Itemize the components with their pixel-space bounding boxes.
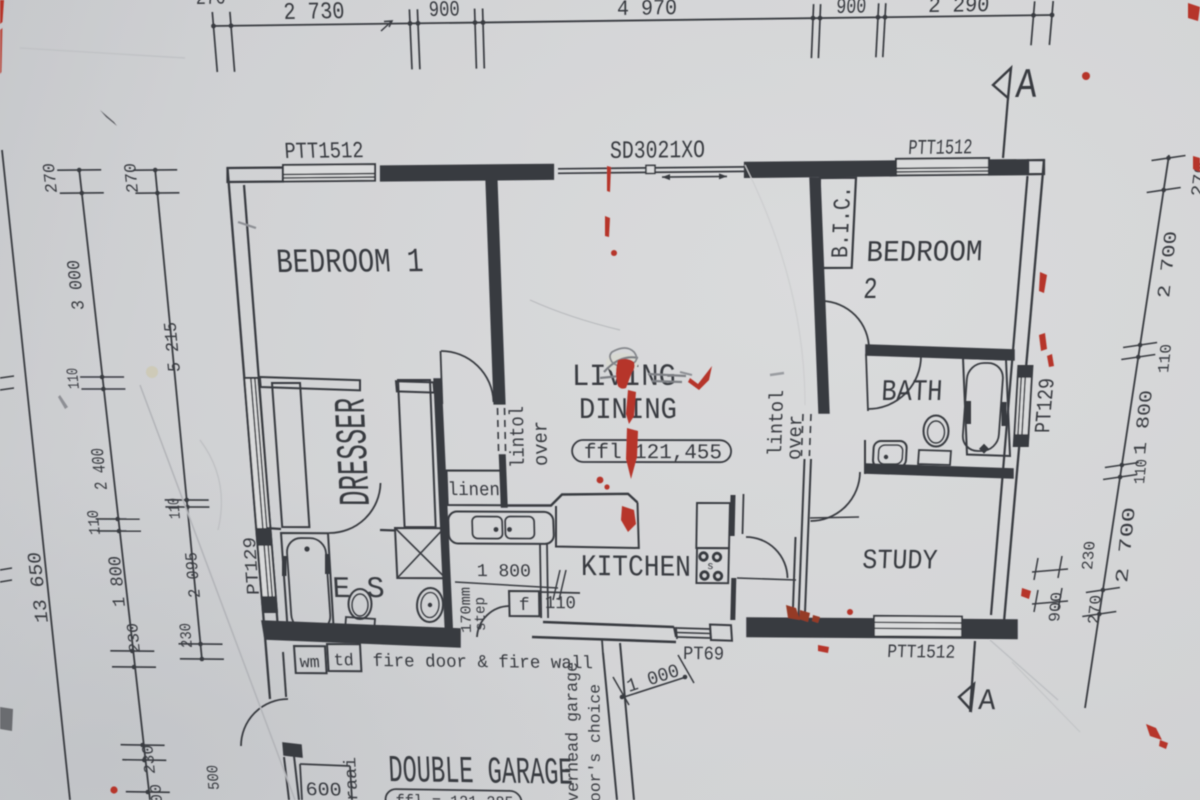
svg-text:PTT1512: PTT1512: [908, 137, 973, 161]
svg-text:5 215: 5 215: [162, 322, 186, 372]
svg-text:BEDROOM: BEDROOM: [865, 236, 983, 271]
svg-text:linen: linen: [447, 479, 500, 501]
svg-text:110: 110: [84, 510, 105, 535]
svg-text:500: 500: [204, 765, 224, 790]
svg-text:4 970: 4 970: [617, 0, 677, 22]
svg-text:2: 2: [863, 274, 879, 308]
svg-text:900: 900: [836, 0, 867, 20]
svg-text:PTT1512: PTT1512: [284, 138, 365, 165]
svg-text:270: 270: [41, 163, 63, 193]
svg-text:ffl 121,455: ffl 121,455: [584, 442, 722, 465]
svg-text:110: 110: [1155, 344, 1176, 373]
svg-text:ffl = 121 285: ffl = 121 285: [395, 793, 514, 800]
svg-text:2 700: 2 700: [1155, 231, 1182, 298]
svg-text:110: 110: [165, 498, 185, 519]
svg-text:td: td: [333, 652, 354, 671]
svg-text:A: A: [977, 685, 996, 719]
svg-text:3 000: 3 000: [65, 260, 90, 310]
svg-text:SD3021XO: SD3021XO: [610, 136, 705, 166]
svg-text:braai: braai: [342, 757, 364, 800]
svg-text:2 400: 2 400: [89, 448, 113, 490]
svg-text:over: over: [530, 421, 554, 466]
svg-text:overhead garage: overhead garage: [564, 662, 584, 800]
svg-text:2 290: 2 290: [928, 0, 991, 19]
svg-text:110: 110: [64, 368, 84, 389]
svg-text:1 800: 1 800: [477, 562, 532, 582]
svg-text:A: A: [1014, 62, 1039, 110]
svg-text:270: 270: [1085, 595, 1106, 624]
svg-text:300: 300: [147, 784, 168, 800]
svg-text:S: S: [366, 573, 386, 607]
svg-text:230: 230: [177, 623, 197, 648]
svg-text:1 800: 1 800: [106, 556, 131, 607]
svg-text:PT129: PT129: [241, 537, 265, 595]
svg-text:230: 230: [124, 623, 145, 653]
svg-text:s: s: [707, 561, 714, 573]
svg-text:KITCHEN: KITCHEN: [581, 551, 691, 586]
svg-text:2 730: 2 730: [283, 0, 346, 27]
svg-text:f: f: [519, 596, 530, 616]
svg-text:door's choice: door's choice: [586, 684, 605, 800]
svg-text:230: 230: [139, 745, 160, 774]
svg-text:110: 110: [545, 594, 576, 614]
svg-text:wm: wm: [299, 654, 320, 673]
svg-text:230: 230: [1079, 541, 1100, 570]
svg-text:STUDY: STUDY: [862, 546, 939, 577]
svg-text:270: 270: [195, 0, 227, 11]
svg-text:600: 600: [305, 779, 342, 800]
svg-text:PT69: PT69: [683, 643, 724, 665]
svg-text:step: step: [472, 597, 490, 631]
svg-text:fire door & fire wall: fire door & fire wall: [372, 652, 593, 674]
svg-text:110: 110: [1131, 459, 1152, 484]
svg-text:270: 270: [122, 163, 144, 193]
svg-text:900: 900: [1046, 592, 1067, 622]
svg-text:2 095: 2 095: [183, 552, 206, 598]
svg-text:DRESSER: DRESSER: [328, 398, 383, 506]
svg-text:PT129: PT129: [1031, 378, 1061, 433]
svg-text:B.I.C.: B.I.C.: [828, 186, 858, 258]
svg-text:1 800: 1 800: [1131, 390, 1158, 455]
svg-text:BEDROOM 1: BEDROOM 1: [275, 244, 425, 283]
svg-text:over: over: [784, 415, 809, 460]
svg-text:900: 900: [428, 0, 460, 23]
svg-text:lintol: lintol: [507, 406, 531, 468]
svg-text:13 650: 13 650: [24, 552, 54, 623]
svg-text:2 700: 2 700: [1113, 507, 1141, 583]
svg-text:PTT1512: PTT1512: [887, 641, 956, 664]
svg-text:1 000: 1 000: [624, 660, 682, 698]
